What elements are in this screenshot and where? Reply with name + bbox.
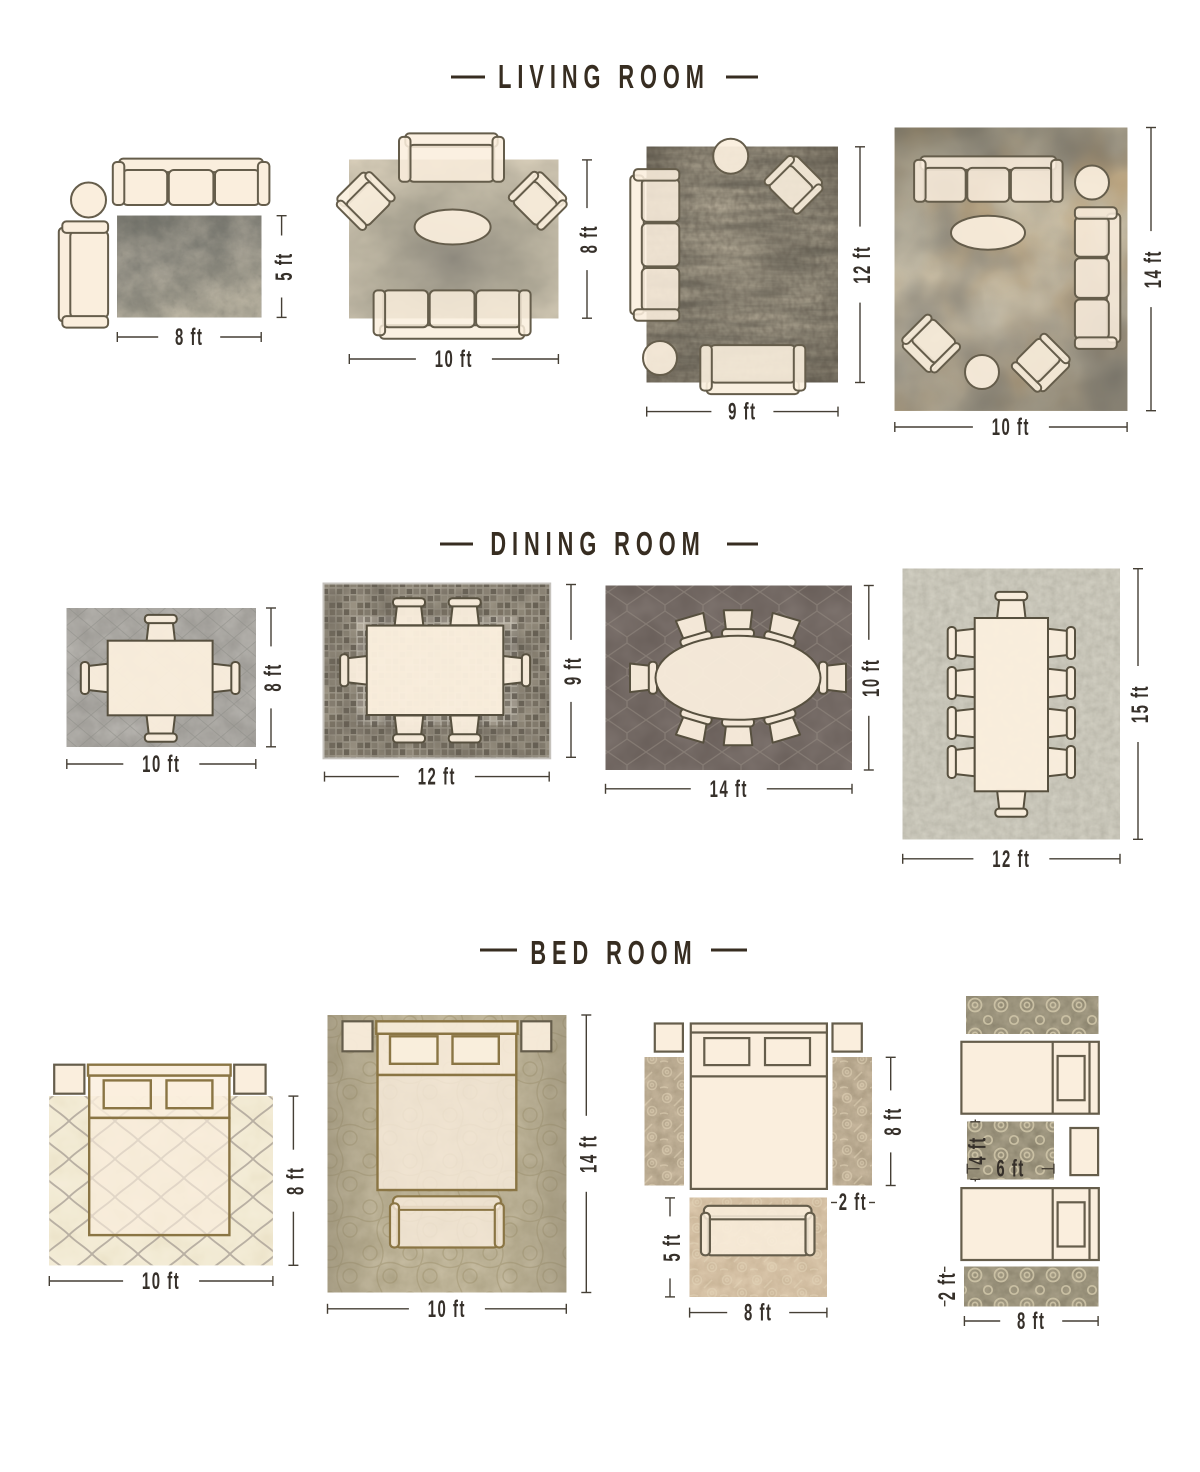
- svg-text:8 ft: 8 ft: [1017, 1309, 1046, 1335]
- svg-text:DINING ROOM: DINING ROOM: [490, 525, 705, 562]
- svg-text:5 ft: 5 ft: [660, 1233, 686, 1262]
- svg-text:12 ft: 12 ft: [850, 245, 876, 283]
- svg-text:12 ft: 12 ft: [992, 846, 1030, 872]
- svg-text:LIVING ROOM: LIVING ROOM: [498, 58, 710, 95]
- svg-text:6 ft: 6 ft: [996, 1156, 1025, 1182]
- svg-text:15 ft: 15 ft: [1128, 685, 1154, 723]
- svg-text:10 ft: 10 ft: [435, 347, 473, 373]
- svg-text:10 ft: 10 ft: [992, 415, 1030, 441]
- svg-text:10 ft: 10 ft: [142, 1269, 180, 1295]
- svg-text:5 ft: 5 ft: [271, 252, 297, 281]
- svg-text:9 ft: 9 ft: [728, 399, 757, 425]
- svg-text:10 ft: 10 ft: [142, 752, 180, 778]
- svg-text:8 ft: 8 ft: [744, 1300, 773, 1326]
- svg-text:BED ROOM: BED ROOM: [530, 934, 697, 971]
- svg-text:2 ft: 2 ft: [839, 1190, 868, 1216]
- svg-text:14 ft: 14 ft: [710, 776, 748, 802]
- svg-text:12 ft: 12 ft: [418, 764, 456, 790]
- svg-text:4 ft: 4 ft: [965, 1136, 991, 1165]
- svg-text:10 ft: 10 ft: [428, 1296, 466, 1322]
- svg-text:14 ft: 14 ft: [1141, 250, 1167, 288]
- svg-text:10 ft: 10 ft: [859, 659, 885, 697]
- svg-text:8 ft: 8 ft: [283, 1166, 309, 1195]
- svg-text:9 ft: 9 ft: [561, 657, 587, 686]
- svg-text:8 ft: 8 ft: [261, 663, 287, 692]
- svg-text:8 ft: 8 ft: [880, 1107, 906, 1136]
- svg-text:14 ft: 14 ft: [576, 1135, 602, 1173]
- svg-text:8 ft: 8 ft: [175, 325, 204, 351]
- svg-text:2 ft: 2 ft: [934, 1272, 960, 1301]
- svg-text:8 ft: 8 ft: [577, 225, 603, 254]
